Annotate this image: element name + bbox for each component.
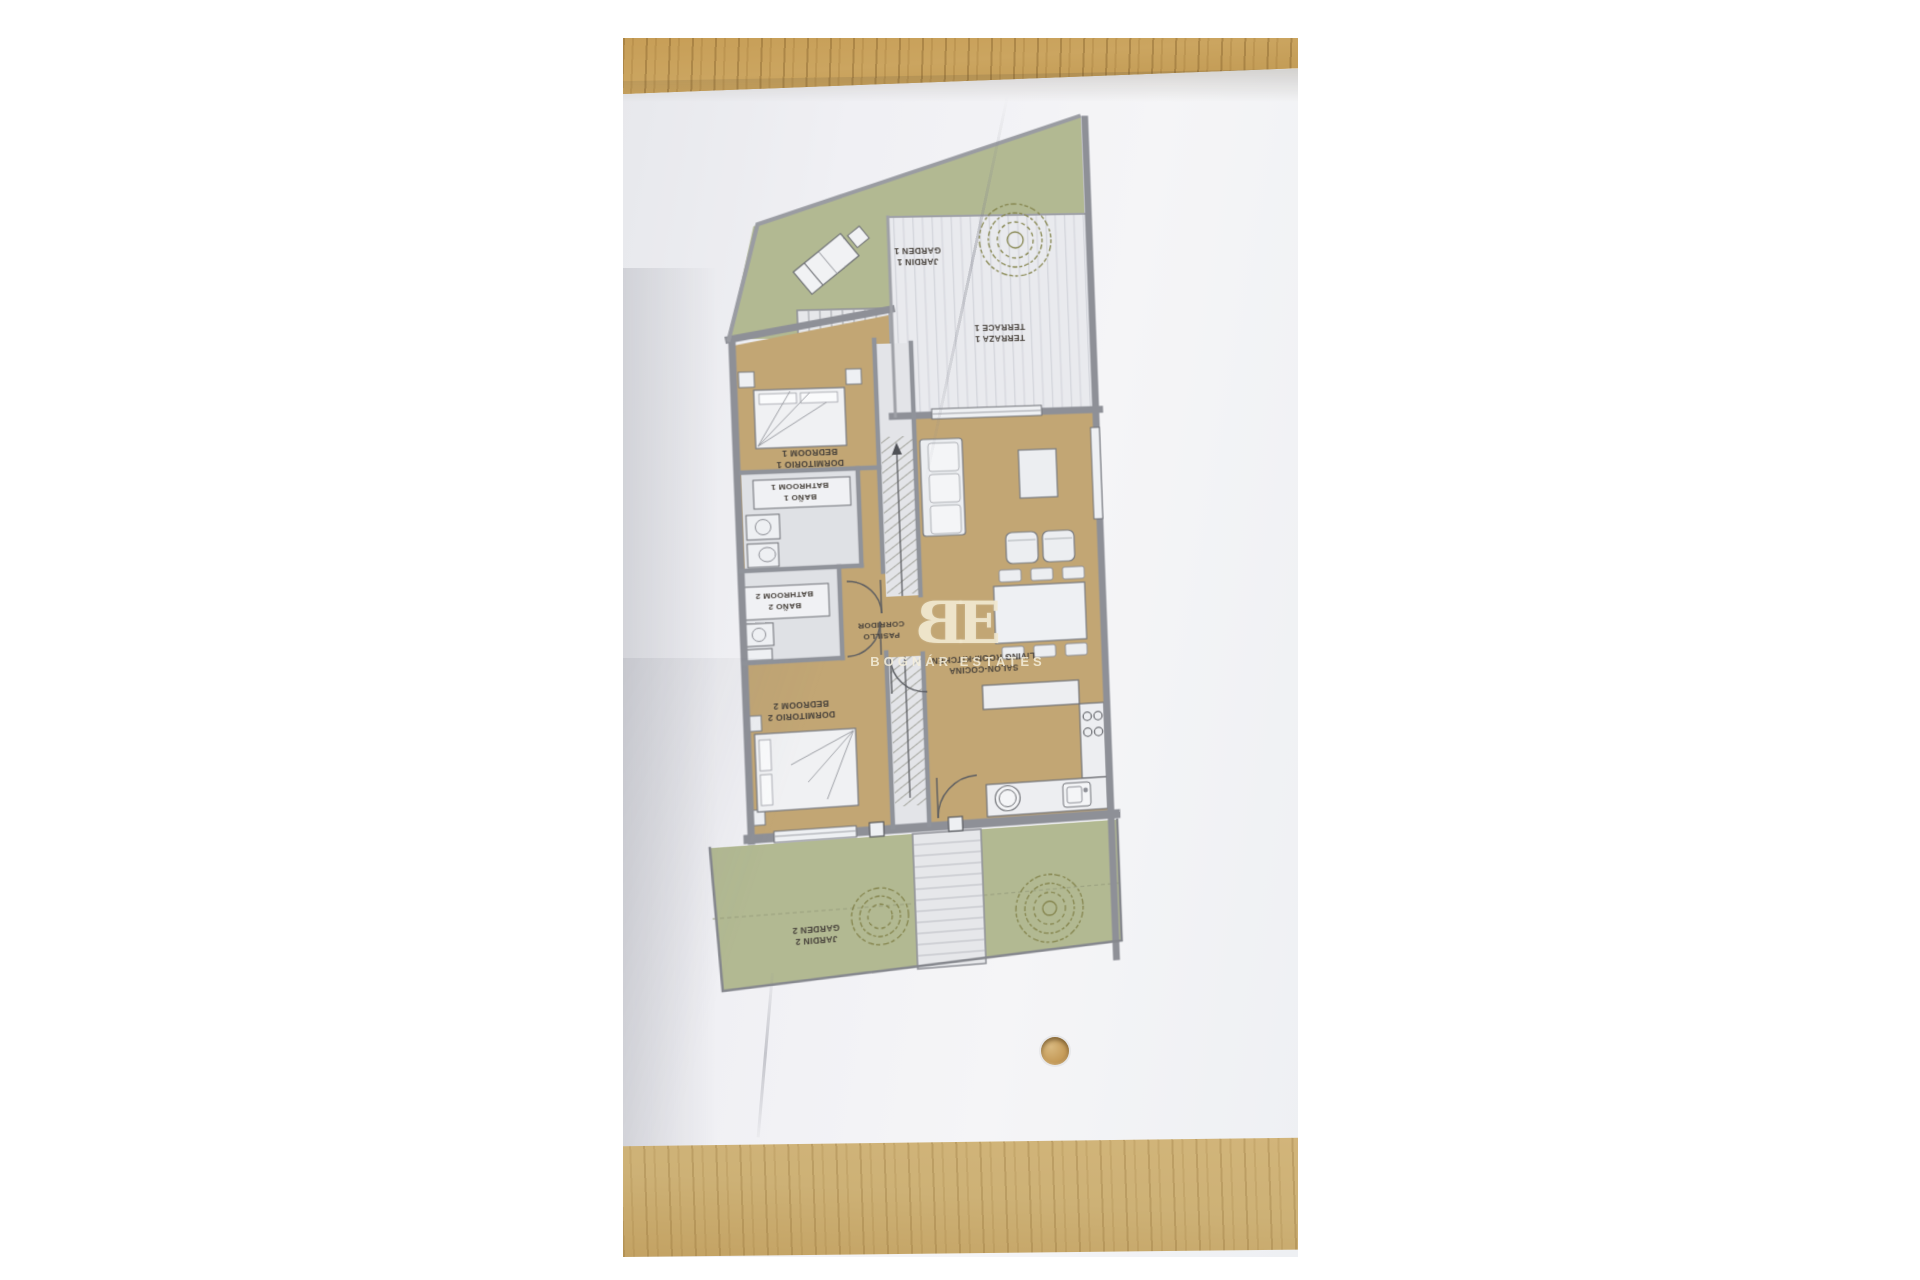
label-bedroom-2: DORMITORIO 2 BEDROOM 2 xyxy=(767,698,835,723)
label-corridor-es: PASILLO xyxy=(863,631,900,642)
room-terrace-1 xyxy=(888,214,1096,417)
label-bathroom-1-es: BAÑO 1 xyxy=(783,492,817,502)
label-garden-2: JARDIN 2 GARDEN 2 xyxy=(792,923,840,948)
label-garden-1-es: JARDIN 1 xyxy=(897,257,939,268)
punched-hole xyxy=(1041,1037,1069,1065)
sink-icon xyxy=(1063,782,1091,808)
label-bathroom-2-es: BAÑO 2 xyxy=(768,601,802,612)
label-bedroom-1: DORMITORIO 1 BEDROOM 1 xyxy=(776,446,844,470)
desk-scene: JARDIN 1 GARDEN 1 TERRAZA 1 TERRACE 1 DO… xyxy=(0,0,1920,1280)
wood-table-bottom-edge xyxy=(623,1134,1298,1257)
floor-plan-svg: JARDIN 1 GARDEN 1 TERRAZA 1 TERRACE 1 DO… xyxy=(623,99,1146,1015)
floorplan-photo: JARDIN 1 GARDEN 1 TERRAZA 1 TERRACE 1 DO… xyxy=(623,38,1298,1257)
label-bedroom-1-en: BEDROOM 1 xyxy=(782,447,838,459)
label-garden-1: JARDIN 1 GARDEN 1 xyxy=(894,245,942,267)
label-terrace-1-es: TERRAZA 1 xyxy=(975,333,1025,344)
room-bathroom-2 xyxy=(741,567,843,664)
coffee-table-icon xyxy=(1018,449,1057,498)
garden-path-steps xyxy=(913,829,986,969)
sofa-icon xyxy=(920,438,966,536)
label-terrace-1-en: TERRACE 1 xyxy=(974,322,1025,333)
floor-plan: JARDIN 1 GARDEN 1 TERRAZA 1 TERRACE 1 DO… xyxy=(623,99,1146,1015)
label-garden-1-en: GARDEN 1 xyxy=(894,245,941,256)
